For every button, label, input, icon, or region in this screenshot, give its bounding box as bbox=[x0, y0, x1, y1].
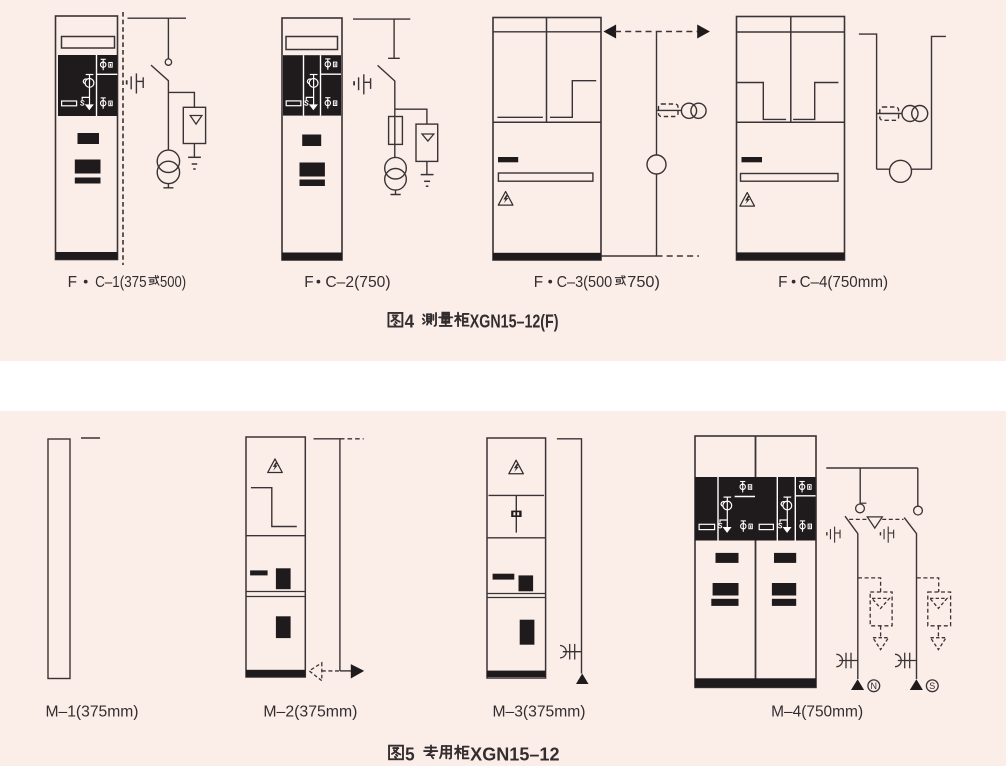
svg-text:5: 5 bbox=[405, 744, 415, 764]
svg-text:M–4(750mm): M–4(750mm) bbox=[771, 704, 863, 721]
svg-text:S: S bbox=[929, 681, 935, 691]
svg-text:500): 500) bbox=[160, 274, 186, 291]
svg-text:N: N bbox=[871, 681, 878, 691]
svg-text:F: F bbox=[778, 274, 787, 291]
svg-text:M–1(375mm): M–1(375mm) bbox=[46, 704, 139, 721]
svg-text:F: F bbox=[534, 274, 543, 291]
svg-text:4: 4 bbox=[405, 312, 415, 332]
svg-text:C–3(500: C–3(500 bbox=[557, 274, 613, 291]
svg-text:F: F bbox=[68, 274, 77, 291]
svg-text:M–3(375mm): M–3(375mm) bbox=[493, 704, 586, 721]
svg-text:C–1(375: C–1(375 bbox=[95, 274, 147, 291]
svg-text:C–4(750mm): C–4(750mm) bbox=[800, 274, 888, 291]
svg-text:XGN15–12(F): XGN15–12(F) bbox=[470, 312, 559, 332]
svg-text:M–2(375mm): M–2(375mm) bbox=[263, 704, 357, 721]
svg-text:F: F bbox=[304, 274, 313, 291]
svg-text:C–2(750): C–2(750) bbox=[325, 274, 390, 291]
svg-text:750): 750) bbox=[627, 274, 660, 291]
svg-text:XGN15–12: XGN15–12 bbox=[470, 744, 559, 764]
